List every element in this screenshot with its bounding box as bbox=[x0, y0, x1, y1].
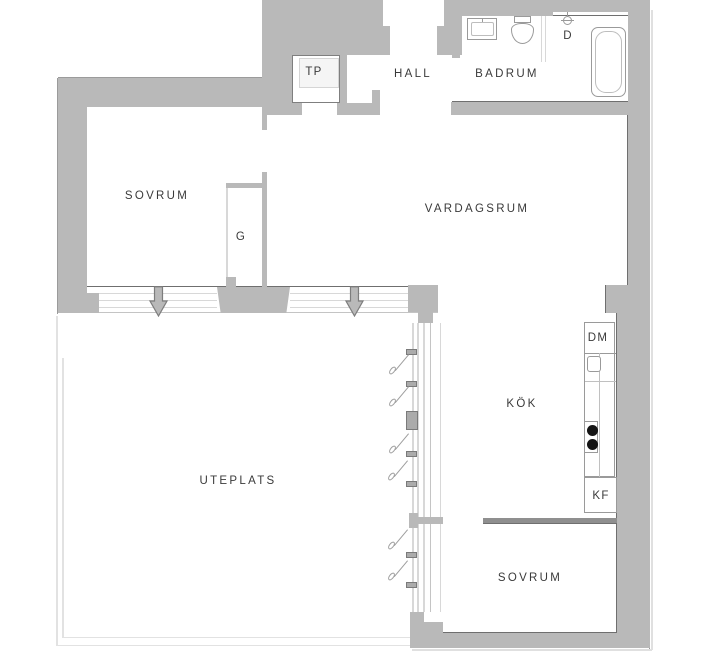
room-label-vardagsrum: VARDAGSRUM bbox=[425, 203, 530, 215]
door-hinge-block bbox=[406, 582, 417, 588]
wall-segment bbox=[437, 26, 444, 55]
wall-segment bbox=[617, 313, 650, 648]
toilet-tank-icon bbox=[514, 16, 531, 23]
wall-segment bbox=[262, 172, 267, 287]
patio-edge-line bbox=[62, 358, 64, 638]
door-swing-line bbox=[395, 354, 409, 371]
appliance-label-kf: KF bbox=[592, 490, 609, 502]
wall-segment bbox=[451, 102, 628, 115]
door-hinge-block bbox=[406, 481, 417, 487]
glazing-line bbox=[412, 323, 414, 612]
door-swing-line bbox=[395, 386, 409, 403]
shower-partition-line bbox=[541, 16, 542, 62]
wall-segment bbox=[226, 277, 236, 287]
wall-segment bbox=[347, 0, 383, 55]
down-arrow-icon bbox=[345, 286, 364, 317]
room-label-badrum: BADRUM bbox=[475, 68, 539, 80]
wall-segment bbox=[292, 0, 340, 55]
appliance-label-dm: DM bbox=[588, 332, 609, 344]
floor-plan: SOVRUM G TP HALL BADRUM D VARDAGSRUM KÖK… bbox=[0, 0, 728, 661]
wall-segment bbox=[409, 513, 418, 528]
door-hinge-block bbox=[406, 411, 418, 430]
bathtub-icon bbox=[591, 27, 626, 97]
wall-segment bbox=[226, 183, 262, 188]
wall-segment bbox=[87, 293, 99, 313]
wall-segment bbox=[58, 107, 87, 313]
wall-segment bbox=[418, 517, 443, 524]
wall-segment bbox=[340, 0, 347, 107]
door-hinge-block bbox=[406, 451, 417, 457]
burner-icon bbox=[587, 439, 598, 450]
glazing-line bbox=[417, 323, 419, 612]
shower-drain-icon bbox=[560, 11, 576, 27]
shower-partition-line bbox=[545, 16, 546, 62]
wall-segment bbox=[58, 78, 262, 107]
patio-edge-line bbox=[56, 645, 412, 647]
closet-line bbox=[226, 188, 228, 287]
shadow-line bbox=[412, 649, 652, 651]
wall-segment bbox=[452, 0, 460, 58]
wall-segment bbox=[262, 0, 292, 115]
burner-icon bbox=[587, 425, 598, 436]
wall-segment bbox=[410, 612, 424, 648]
down-arrow-icon bbox=[149, 286, 168, 317]
room-label-hall: HALL bbox=[394, 68, 432, 80]
room-label-tp: TP bbox=[305, 66, 322, 78]
door-hinge-block bbox=[406, 552, 417, 558]
sink-basin bbox=[471, 22, 494, 36]
wall-segment bbox=[424, 622, 443, 648]
room-label-sovrum-top: SOVRUM bbox=[125, 190, 189, 202]
wall-segment bbox=[372, 90, 380, 103]
kitchen-counter bbox=[584, 322, 615, 477]
patio-edge-line bbox=[56, 316, 58, 646]
room-label-sovrum-bottom: SOVRUM bbox=[498, 572, 562, 584]
glazing-line bbox=[423, 323, 425, 612]
wall-segment bbox=[383, 26, 390, 55]
floor-edge-line bbox=[440, 323, 441, 612]
sink-tap bbox=[482, 18, 483, 22]
wall-segment bbox=[483, 518, 617, 523]
bathtub-inner bbox=[595, 31, 622, 93]
wall-segment bbox=[443, 633, 650, 648]
wall-segment bbox=[628, 0, 650, 285]
door-swing-line bbox=[394, 529, 408, 546]
shadow-line bbox=[651, 10, 653, 650]
room-label-garderob: G bbox=[236, 231, 246, 243]
room-label-kok: KÖK bbox=[506, 398, 537, 410]
patio-edge-line bbox=[62, 637, 412, 639]
room-label-uteplats: UTEPLATS bbox=[200, 475, 277, 487]
wall-segment bbox=[290, 103, 302, 115]
wall-segment bbox=[460, 0, 553, 16]
toilet-bowl-icon bbox=[511, 23, 534, 44]
door-swing-line bbox=[395, 433, 409, 450]
wall-segment bbox=[337, 103, 380, 115]
door-swing-line bbox=[394, 560, 408, 577]
wall-segment bbox=[262, 107, 267, 130]
kitchen-sink-icon bbox=[587, 356, 601, 372]
door-swing-line bbox=[394, 460, 408, 477]
wall-segment bbox=[606, 285, 650, 313]
wall-pillar bbox=[217, 287, 290, 313]
room-label-dusch: D bbox=[563, 30, 573, 42]
glazing-line bbox=[430, 323, 432, 612]
stove-icon bbox=[584, 421, 598, 453]
sink-icon bbox=[467, 18, 497, 40]
wall-segment bbox=[418, 312, 433, 323]
wall-segment bbox=[408, 285, 438, 312]
